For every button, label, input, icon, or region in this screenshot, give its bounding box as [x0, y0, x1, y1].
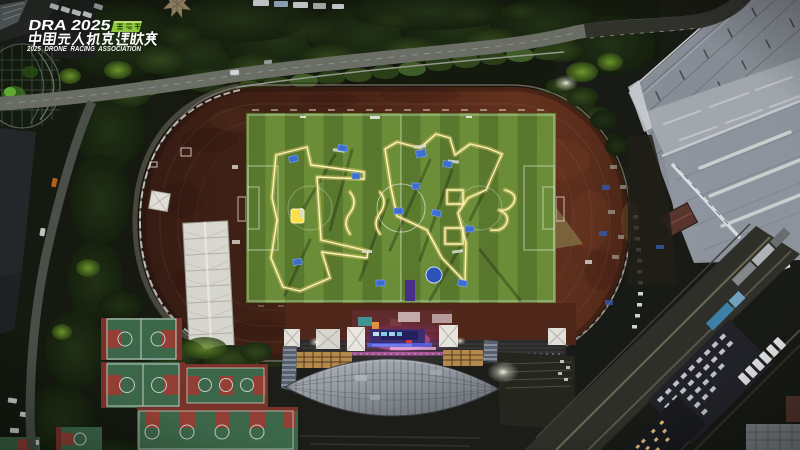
svg-text:2025 DRONE RACING ASSOCIATI: 2025 DRONE RACING ASSOCIATION	[26, 44, 141, 53]
svg-text:DRA 2025: DRA 2025	[27, 18, 112, 34]
